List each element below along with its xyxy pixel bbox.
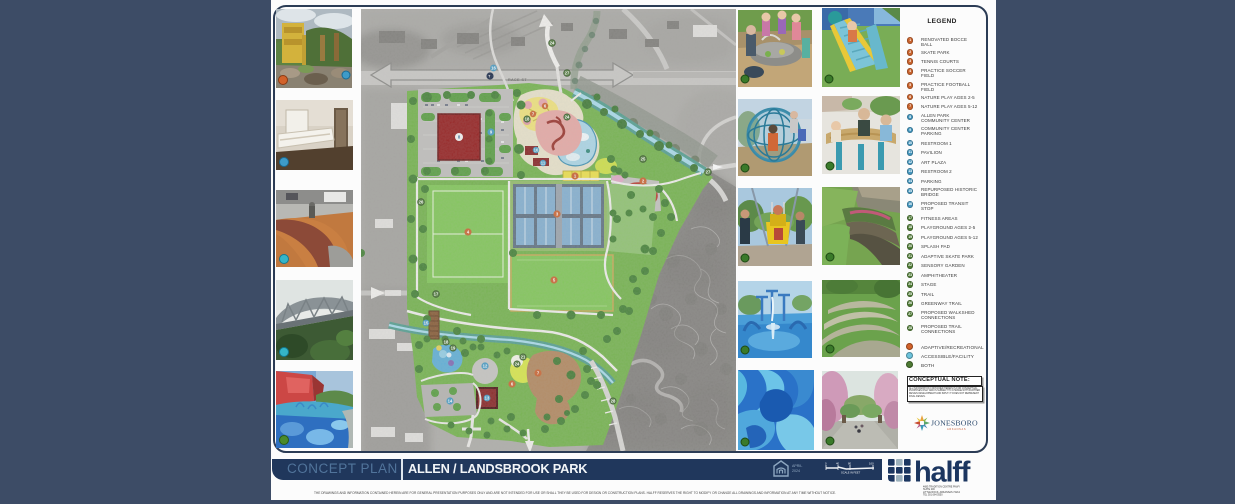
svg-text:80: 80 bbox=[848, 461, 852, 465]
svg-text:SCALE IN FEET: SCALE IN FEET bbox=[841, 470, 861, 474]
svg-text:halff: halff bbox=[914, 459, 971, 489]
svg-text:TEL 501.664.5550: TEL 501.664.5550 bbox=[923, 494, 943, 497]
svg-text:0: 0 bbox=[825, 461, 827, 465]
svg-text:JONESBORO: JONESBORO bbox=[931, 419, 978, 428]
svg-text:160: 160 bbox=[869, 461, 874, 465]
svg-text:40: 40 bbox=[836, 461, 840, 465]
svg-text:ARKANSAS: ARKANSAS bbox=[947, 428, 966, 431]
